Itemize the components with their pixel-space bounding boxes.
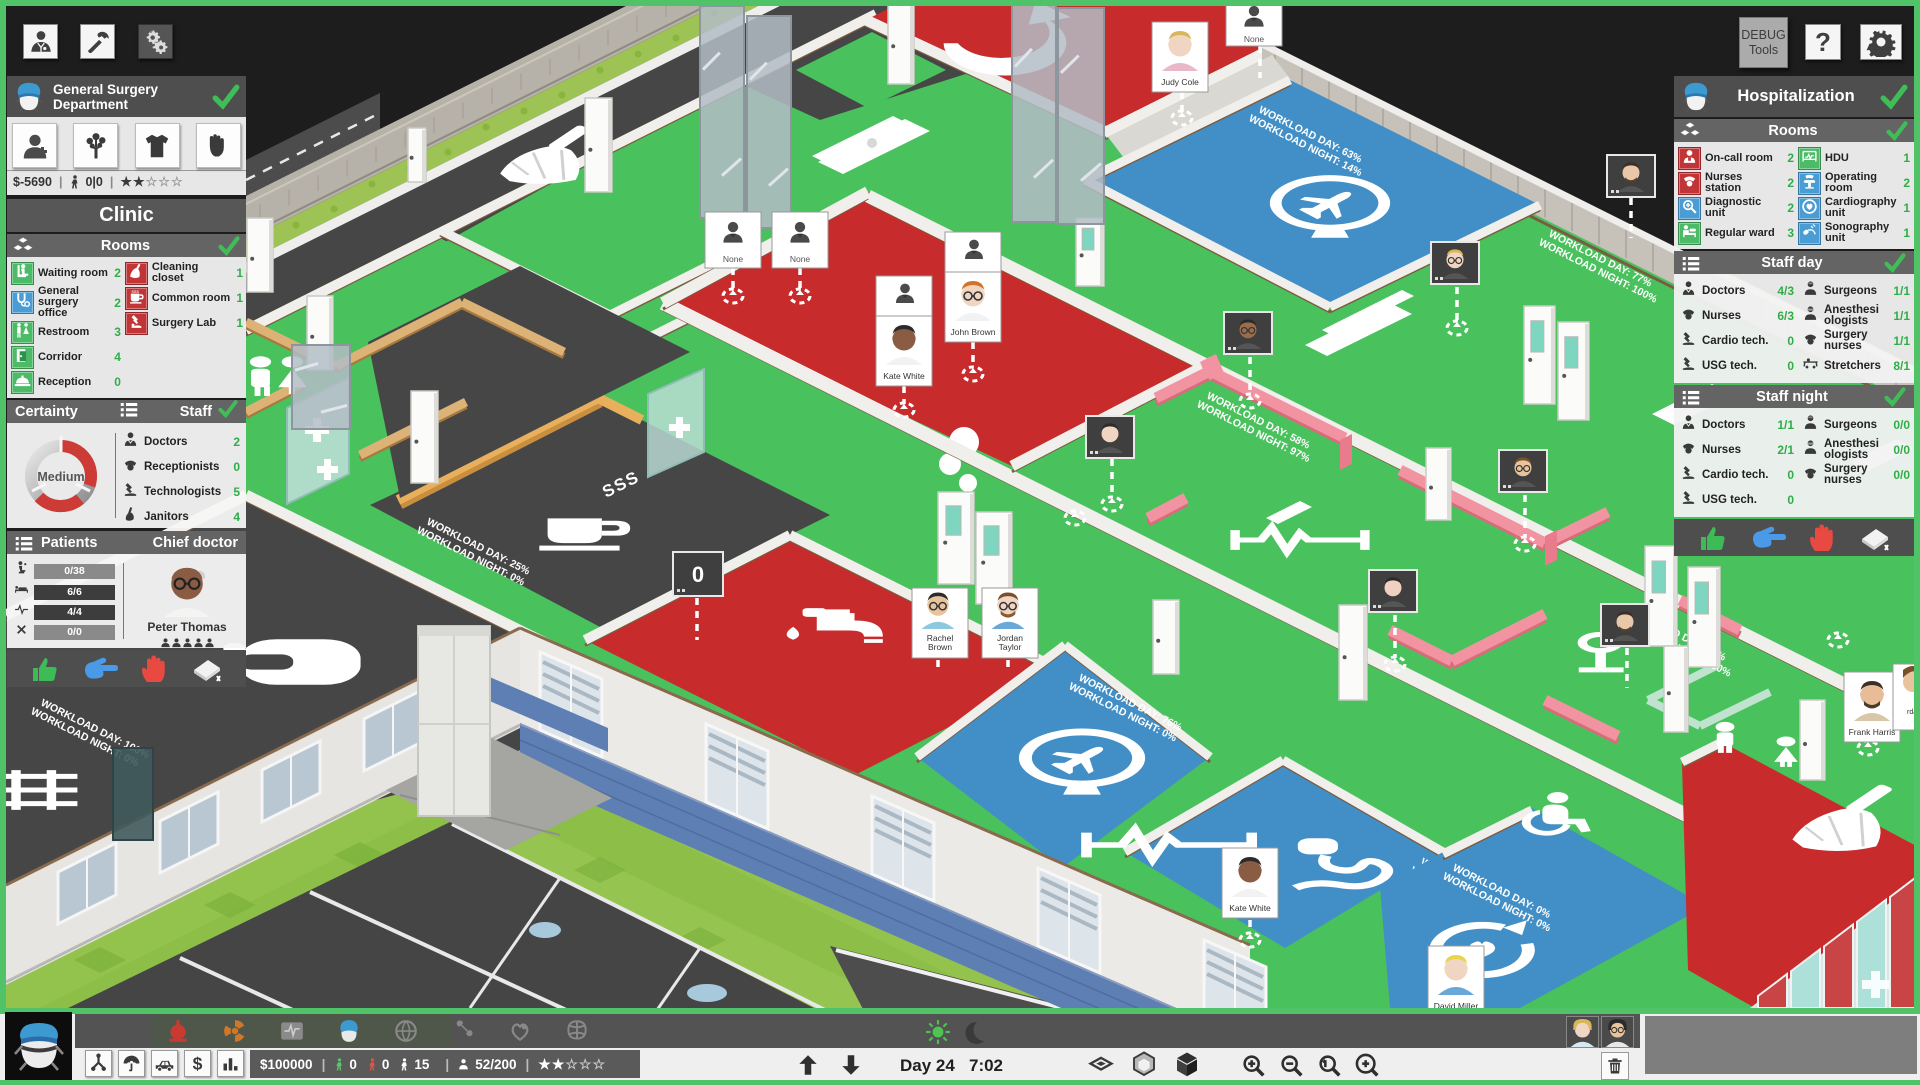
svg-text:None: None bbox=[723, 254, 744, 264]
svg-text:Kate White: Kate White bbox=[883, 371, 925, 381]
svg-text:Frank Harris: Frank Harris bbox=[1849, 727, 1896, 737]
svg-text:Judy Cole: Judy Cole bbox=[1161, 77, 1199, 87]
svg-text:rda: rda bbox=[1907, 709, 1914, 716]
svg-text:0: 0 bbox=[692, 562, 704, 587]
svg-text:Kate White: Kate White bbox=[1229, 903, 1271, 913]
svg-text:None: None bbox=[1244, 34, 1265, 44]
svg-text:John Brown: John Brown bbox=[951, 327, 996, 337]
svg-text:sss: sss bbox=[131, 289, 139, 294]
svg-text:$: $ bbox=[193, 1054, 203, 1074]
svg-text:RachelBrown: RachelBrown bbox=[927, 633, 954, 652]
svg-text:None: None bbox=[790, 254, 811, 264]
svg-text:David Miller: David Miller bbox=[1434, 1001, 1479, 1008]
svg-text:JordanTaylor: JordanTaylor bbox=[997, 633, 1023, 652]
svg-text:Medium: Medium bbox=[37, 470, 84, 484]
